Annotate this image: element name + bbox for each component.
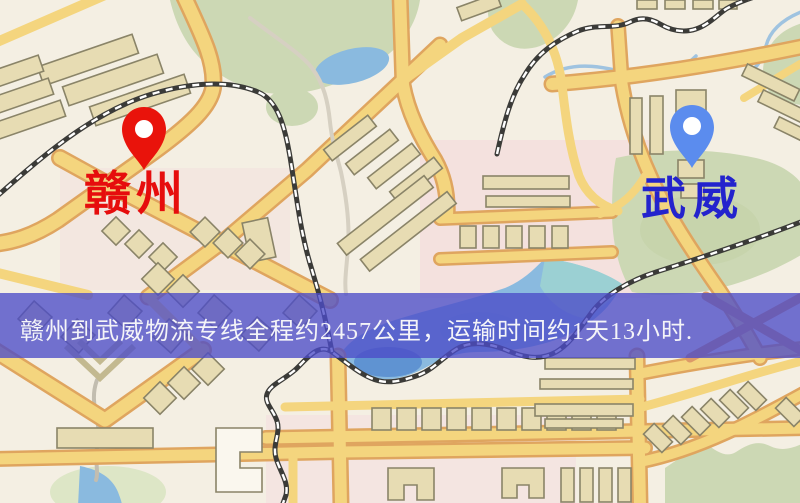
origin-pin-shape bbox=[122, 107, 166, 170]
origin-marker[interactable] bbox=[121, 106, 167, 172]
destination-pin-shape bbox=[670, 105, 714, 168]
map-background bbox=[0, 0, 800, 503]
route-info-banner: 赣州到武威物流专线全程约2457公里，运输时间约1天13小时. bbox=[0, 293, 800, 358]
destination-label: 武威 bbox=[641, 177, 745, 222]
origin-label: 赣州 bbox=[84, 172, 188, 219]
destination-marker[interactable] bbox=[669, 104, 715, 170]
origin-marker-icon bbox=[121, 106, 167, 172]
origin-pin-hole bbox=[135, 120, 153, 138]
destination-marker-icon bbox=[669, 104, 715, 170]
map-viewport: 赣州 武威 赣州到武威物流专线全程约2457公里，运输时间约1天13小时. bbox=[0, 0, 800, 503]
route-info-text: 赣州到武威物流专线全程约2457公里，运输时间约1天13小时. bbox=[0, 305, 693, 346]
destination-pin-hole bbox=[683, 117, 701, 135]
